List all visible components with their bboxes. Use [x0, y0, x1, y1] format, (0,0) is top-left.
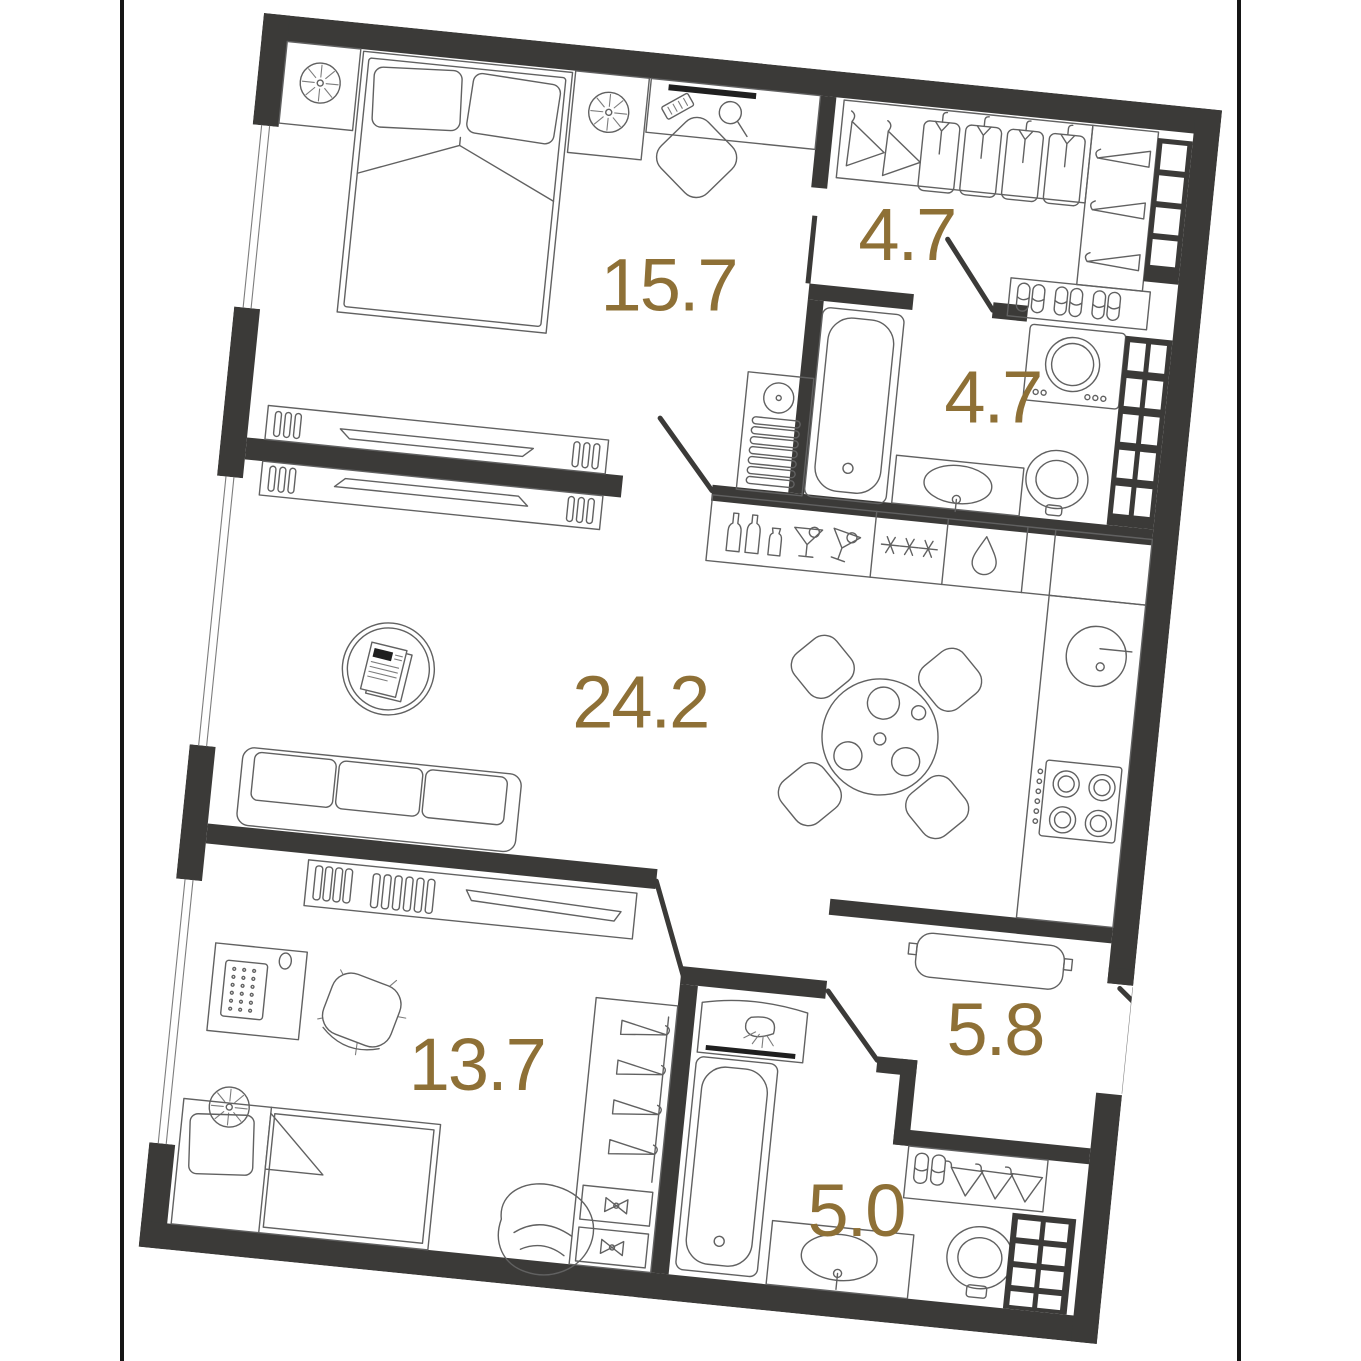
hanger-icon [966, 1154, 1013, 1199]
bathroom2-door-leaf [822, 991, 884, 1060]
label-living-kitchen: 24.2 [572, 661, 708, 744]
water-drop-icon [971, 536, 999, 576]
entry-door-leaf [1113, 988, 1203, 1064]
double-bed-icon [337, 51, 572, 333]
hanger-icon [936, 1151, 983, 1196]
right-frame-rule [1237, 0, 1241, 1361]
bathtub-icon [675, 1056, 778, 1277]
newspaper-icon [360, 642, 413, 702]
shirt-icon [917, 110, 961, 193]
coffee-table-icon [338, 619, 439, 720]
mirror-icon [717, 101, 750, 137]
shoe-grid-icon [1003, 1213, 1076, 1315]
hanger-rail-icons [1085, 146, 1151, 271]
window-bedroom [221, 123, 278, 309]
window-bedroom-2 [139, 877, 202, 1145]
nightstand-icon [567, 71, 649, 160]
snowflake-icon [881, 536, 938, 558]
dining-table-icon [768, 625, 992, 849]
office-chair-icon [311, 959, 417, 1067]
computer-desk-icon [207, 943, 307, 1040]
fan-icon [207, 1085, 251, 1129]
shower-panel-icon [697, 996, 808, 1062]
hanger-icon [996, 1157, 1043, 1202]
stool-icon [650, 111, 743, 204]
cooktop-icon [1032, 759, 1122, 843]
hanger-icon [866, 115, 920, 175]
window-living [177, 474, 243, 747]
slippers-icon [913, 1153, 946, 1186]
entry-threshold [1122, 988, 1145, 1095]
label-bedroom-2: 13.7 [409, 1023, 545, 1106]
label-bedroom: 15.7 [601, 243, 737, 326]
label-hallway: 5.8 [947, 988, 1044, 1071]
slippers-icon [1016, 283, 1121, 321]
label-bathroom: 4.7 [944, 356, 1041, 439]
room-hallway [906, 931, 1074, 991]
kitchen-sink-icon [1063, 624, 1134, 690]
single-bed-icon [171, 1098, 440, 1249]
label-bathroom-2: 5.0 [808, 1169, 905, 1252]
label-dressing-room: 4.7 [858, 193, 955, 276]
keyboard-icon [229, 967, 256, 1012]
bench-icon [906, 931, 1074, 991]
folded-clothes-icon [605, 1198, 628, 1214]
shirt-icon [1001, 119, 1045, 202]
toilet-icon [1022, 448, 1090, 519]
shirt-icon [959, 115, 1003, 198]
folded-clothes-icon [600, 1239, 623, 1255]
floor-plan: 15.7 4.7 4.7 24.2 13.7 5.8 5.0 [139, 13, 1222, 1344]
room-bedroom [247, 41, 843, 495]
shirt-icon [1043, 123, 1087, 206]
cocktail-icon [792, 522, 862, 564]
floorplan-page: { "page": { "background": "#ffffff", "fr… [0, 0, 1361, 1361]
left-frame-rule [120, 0, 124, 1361]
bar-bottles-icon [726, 513, 784, 556]
windows [139, 123, 279, 1145]
slipper-shelf [1007, 278, 1150, 330]
bedroom-door-leaf [653, 418, 718, 491]
comb-icon [661, 93, 694, 120]
nightstand-icon [279, 41, 361, 130]
floor-plan-svg: 15.7 4.7 4.7 24.2 13.7 5.8 5.0 [139, 13, 1222, 1344]
